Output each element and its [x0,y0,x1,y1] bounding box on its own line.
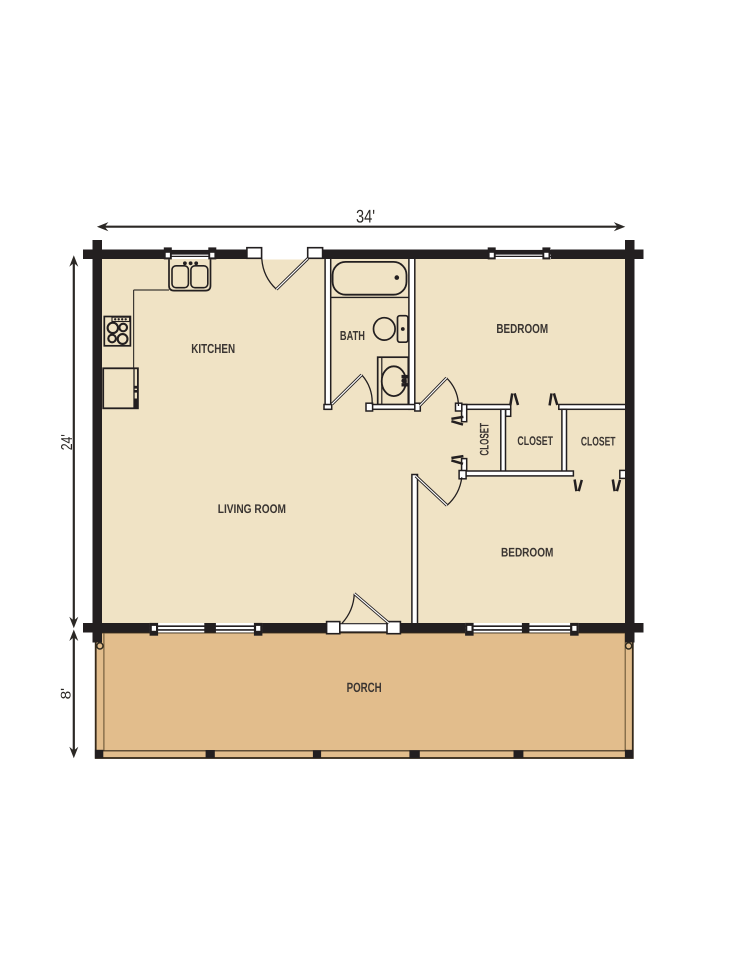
svg-text:KITCHEN: KITCHEN [191,341,235,356]
svg-text:BEDROOM: BEDROOM [501,545,553,559]
svg-text:LIVING ROOM: LIVING ROOM [218,502,286,516]
svg-text:8': 8' [58,688,74,700]
svg-text:CLOSET: CLOSET [477,423,491,456]
svg-text:BEDROOM: BEDROOM [496,321,548,336]
svg-text:PORCH: PORCH [347,680,382,695]
svg-text:CLOSET: CLOSET [517,434,553,448]
svg-text:34': 34' [356,205,375,226]
svg-text:CLOSET: CLOSET [581,434,616,448]
svg-text:BATH: BATH [340,328,365,343]
svg-text:24': 24' [59,434,76,450]
